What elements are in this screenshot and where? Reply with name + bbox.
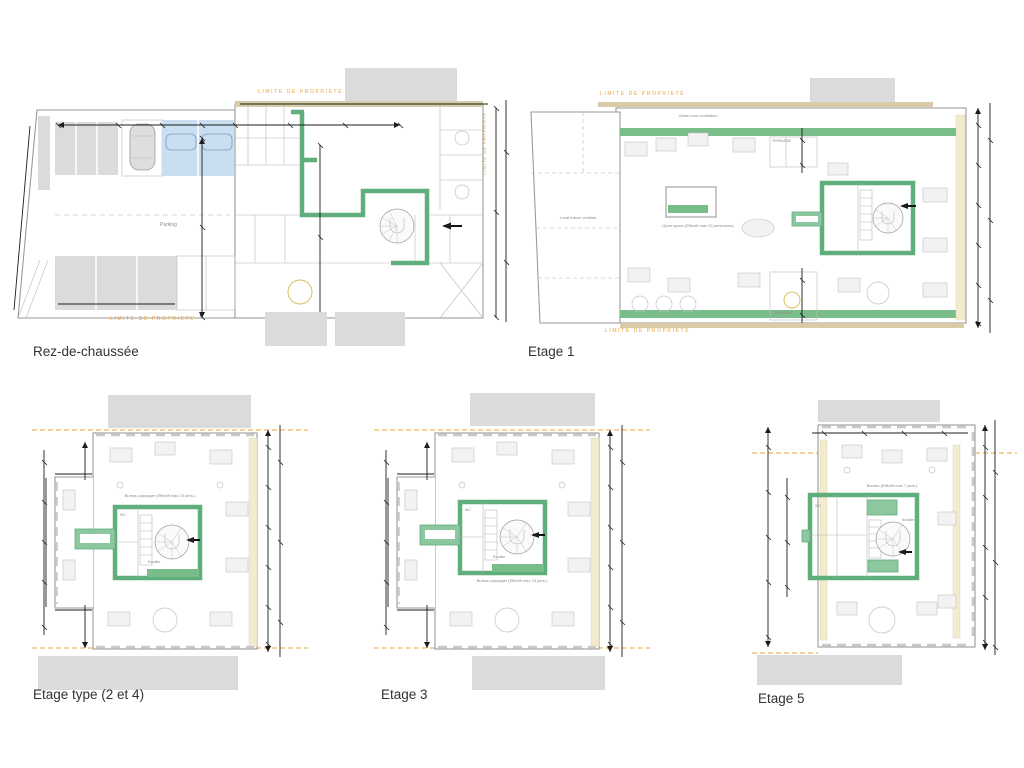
stair-label: Escalier <box>148 560 160 564</box>
property-limit-label-top: LIMITE DE PROPRIETE <box>600 91 685 97</box>
stair-label: Escalier <box>902 518 914 522</box>
adjacent-building-block <box>345 68 457 102</box>
floor-label-rdc: Rez-de-chaussée <box>33 344 139 359</box>
spiral-stair-icon <box>500 520 534 554</box>
open-space-label: Open space (Effectif max 23 personnes) <box>643 224 753 229</box>
car-icon <box>130 124 155 170</box>
spiral-stair-icon <box>380 209 414 243</box>
plan-etage1-drawing <box>528 78 1008 348</box>
building-outline <box>235 104 483 318</box>
window-band <box>956 115 965 320</box>
parking-label: Parking <box>160 222 177 228</box>
plan-etage-5: Bureau (Effectif max 7 pers.) WC Escalie… <box>752 400 1017 712</box>
bureau-label: Bureau (Effectif max 7 pers.) <box>852 484 932 489</box>
floor-label-etage5: Etage 5 <box>758 691 805 706</box>
adjacent-building-block <box>818 400 940 422</box>
window-band <box>591 438 599 646</box>
adjacent-building-block <box>335 312 405 346</box>
property-limit-label-bottom: LIMITE DE PROPRIETE <box>110 316 195 322</box>
wc-label: WC <box>120 513 126 517</box>
bureau-label: Bureau paysager (Effectif max 23 pers.) <box>457 579 567 584</box>
plan-etage-type-drawing <box>30 390 310 710</box>
plan-etage3-drawing <box>372 390 652 710</box>
property-limit-label-top: LIMITE DE PROPRIETE <box>258 89 343 95</box>
bureau-label: Bureau paysager (Effectif max 23 pers.) <box>105 494 215 499</box>
adjacent-building-block <box>757 655 902 685</box>
plan-rez-de-chaussee: LIMITE DE PROPRIETE LIMITE DE PROPRIETE … <box>10 60 510 360</box>
adjacent-building-block <box>810 78 895 102</box>
meeting-room <box>666 187 716 217</box>
roof-room-label: Local toiture ventilée <box>548 216 608 221</box>
window-band <box>249 438 257 646</box>
adjacent-building-block <box>470 393 595 426</box>
planter-band-top <box>620 128 964 136</box>
terrasse-label: TERRASSE <box>774 311 793 315</box>
ventilation-label: Gaine pour ventilation <box>648 114 748 119</box>
plan-etage-type: Bureau paysager (Effectif max 23 pers.) … <box>30 390 310 710</box>
floor-label-etage-type: Etage type (2 et 4) <box>33 687 144 702</box>
adjacent-building-block <box>265 312 327 346</box>
window-band <box>953 445 960 638</box>
adjacent-building-block <box>38 656 238 690</box>
property-wall-top <box>598 102 933 107</box>
window-band <box>820 440 827 640</box>
plan-etage-3: Bureau paysager (Effectif max 23 pers.) … <box>372 390 652 710</box>
property-limit-label-bottom: LIMITE DE PROPRIETE <box>605 328 690 334</box>
terrasse-label: TERRASSE <box>772 139 791 143</box>
wc-label: WC <box>465 508 471 512</box>
property-limit-label-right: LIMITE DE PROPRIETE <box>482 112 487 175</box>
plan-rdc-drawing <box>10 60 510 360</box>
plan-etage-1: LIMITE DE PROPRIETE LIMITE DE PROPRIETE … <box>528 78 1008 360</box>
wc-label: WC <box>815 504 821 508</box>
spiral-stair-icon <box>873 203 903 233</box>
floor-label-etage3: Etage 3 <box>381 687 428 702</box>
adjacent-building-block <box>108 395 251 428</box>
adjacent-building-block <box>472 656 605 690</box>
stair-label: Escalier <box>493 555 505 559</box>
floor-label-etage1: Etage 1 <box>528 344 575 359</box>
spiral-stair-icon <box>155 525 189 559</box>
plan-etage5-drawing <box>752 400 1017 710</box>
floor-plans-sheet: LIMITE DE PROPRIETE LIMITE DE PROPRIETE … <box>0 0 1024 768</box>
